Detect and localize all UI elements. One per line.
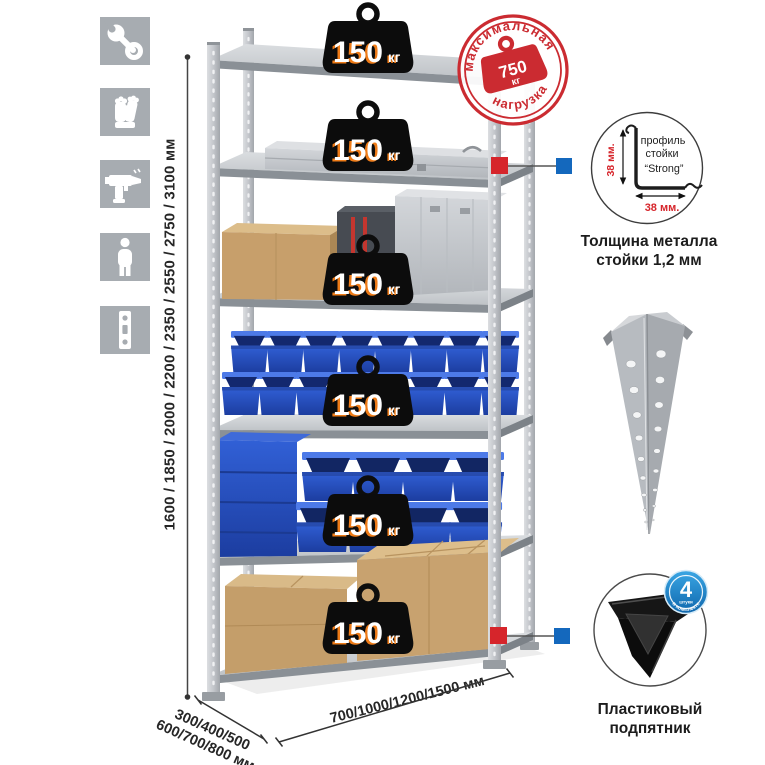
- load-value: 150: [333, 389, 383, 422]
- badge-unit: штуки: [679, 600, 693, 605]
- load-unit: кг: [388, 403, 401, 418]
- foot-caption: Пластиковый подпятник: [575, 700, 725, 738]
- angle-post-image: [595, 302, 705, 547]
- load-unit: кг: [388, 148, 401, 163]
- shelf-load-weight-1: 150 кг: [323, 5, 414, 73]
- profile-caption: Толщина металла стойки 1,2 мм: [573, 232, 725, 270]
- front-left-post: [202, 42, 225, 701]
- load-value: 150: [333, 134, 383, 167]
- wrench-icon: [100, 17, 150, 65]
- post-strip-icon: [100, 306, 150, 354]
- load-value: 150: [333, 509, 383, 542]
- post-profile-detail: 38 мм. 38 мм. профиль стойки “Strong”: [585, 108, 709, 232]
- product-infographic: 150 кг 150 кг 150 кг 150 кг 150 кг: [0, 0, 765, 765]
- drill-icon: [100, 160, 150, 208]
- load-value: 150: [333, 268, 383, 301]
- gloves-icon: [100, 88, 150, 136]
- large-bins-back-row: [302, 452, 504, 501]
- profile-label-3: “Strong”: [644, 163, 683, 175]
- load-value: 150: [333, 617, 383, 650]
- callout-marker-blue-top: [556, 158, 572, 174]
- plastic-foot-detail: 4 штуки в комплекте: [588, 568, 728, 698]
- back-right-post: [520, 46, 539, 650]
- load-unit: кг: [388, 631, 401, 646]
- profile-dim-horizontal: 38 мм.: [645, 202, 680, 214]
- badge-count: 4: [680, 577, 693, 602]
- included-count-badge: 4 штуки в комплекте: [665, 571, 708, 614]
- load-unit: кг: [388, 523, 401, 538]
- load-unit: кг: [388, 50, 401, 65]
- height-dimension-label: 1600 / 1850 / 2000 / 2200 / 2350 / 2550 …: [162, 211, 179, 531]
- profile-caption-line2: стойки 1,2 мм: [573, 251, 725, 270]
- person-icon: [100, 233, 150, 281]
- foot-caption-line2: подпятник: [575, 719, 725, 738]
- load-value: 150: [333, 36, 383, 69]
- max-load-stamp: максимальная нагрузка 750 кг: [448, 5, 578, 135]
- profile-label-1: профиль: [641, 135, 686, 147]
- profile-dim-vertical: 38 мм.: [605, 143, 617, 176]
- blue-crate: [217, 432, 311, 557]
- profile-caption-line1: Толщина металла: [573, 232, 725, 251]
- callout-marker-blue-bottom: [554, 628, 570, 644]
- shelf-load-weight-2: 150 кг: [323, 103, 414, 171]
- load-unit: кг: [388, 282, 401, 297]
- foot-caption-line1: Пластиковый: [575, 700, 725, 719]
- profile-label-2: стойки: [645, 148, 678, 160]
